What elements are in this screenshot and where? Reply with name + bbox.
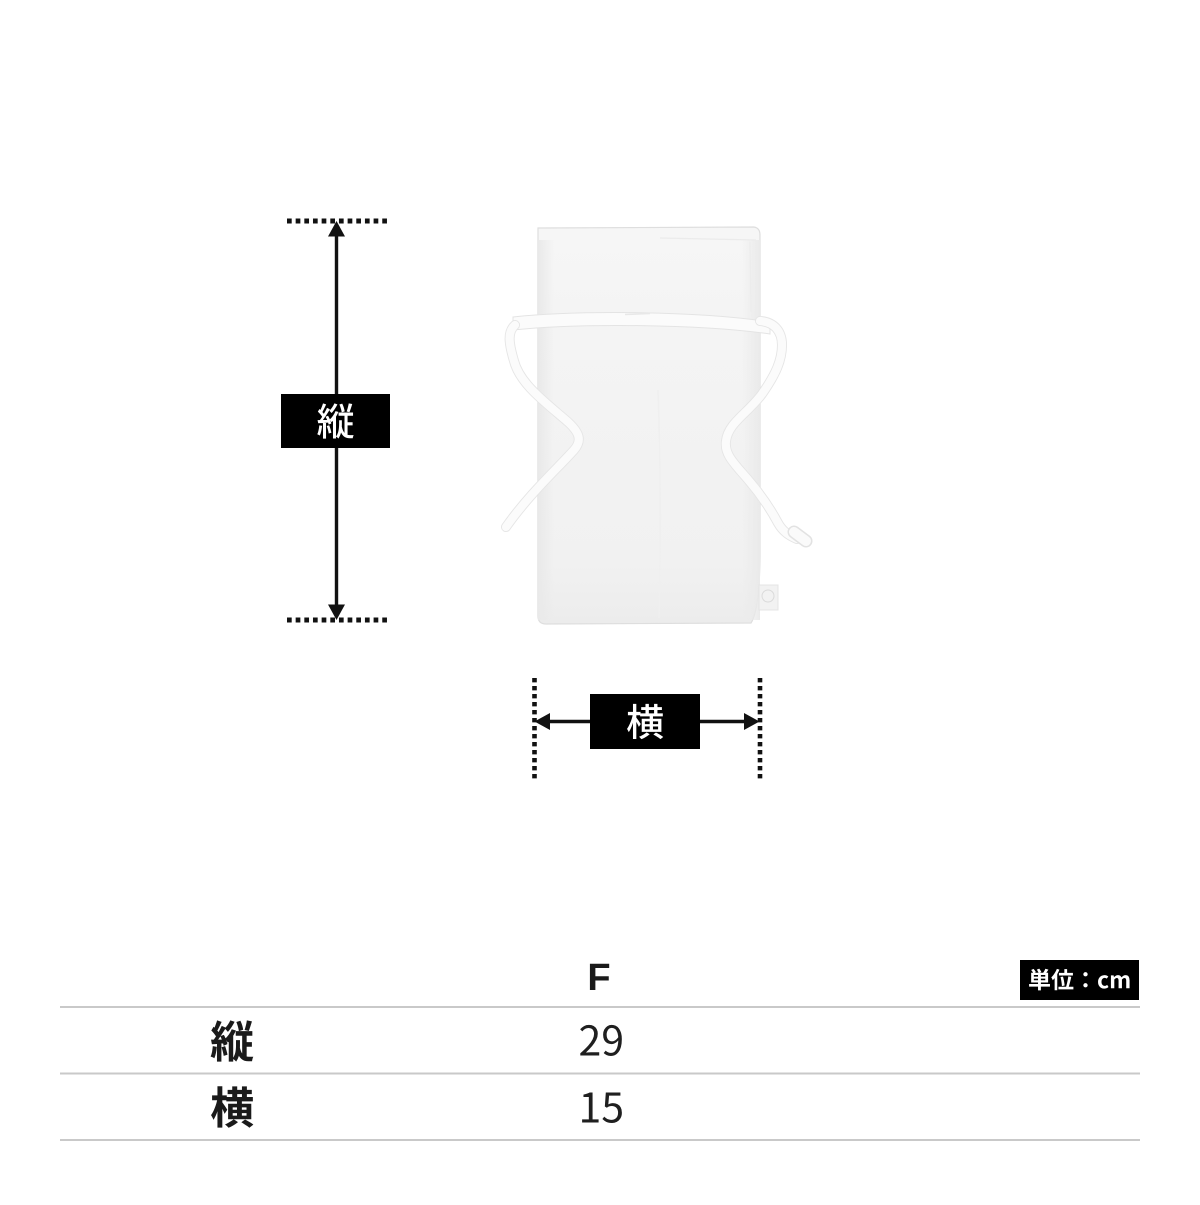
svg-text:F: F: [587, 957, 610, 999]
